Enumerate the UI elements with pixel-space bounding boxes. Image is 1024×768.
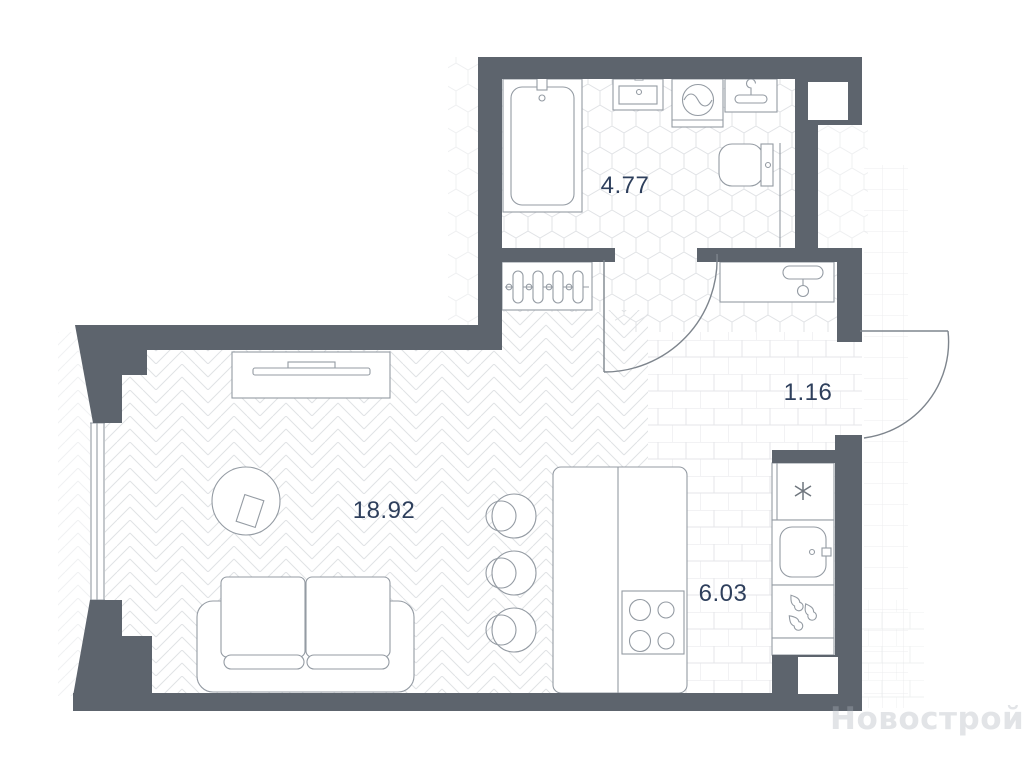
wall-bath-right (795, 125, 818, 260)
living-room-area-label: 18.92 (353, 497, 416, 524)
cooktop (622, 591, 684, 654)
kitchen-sink (772, 520, 834, 585)
hallway-area-label: 1.16 (784, 379, 833, 406)
tv-console (232, 352, 390, 398)
developer-watermark: Новострой-М (830, 701, 1024, 737)
wall-bath-bottom-right (697, 248, 862, 262)
fridge (772, 463, 834, 520)
shaft-opening-bottom (798, 657, 838, 694)
washing-machine (672, 79, 723, 127)
sofa (197, 577, 414, 692)
round-table (212, 467, 280, 535)
kitchen-island (553, 467, 687, 693)
shaft-opening-top (808, 82, 848, 120)
bathtub (503, 78, 582, 212)
wardrobe-hanger (720, 262, 834, 302)
bar-stools (486, 494, 536, 652)
wall-bath-bottom-left (502, 248, 615, 262)
floor-plan-canvas: 4.77 1.16 18.92 6.03 Новострой-М (0, 0, 1024, 768)
bathroom-area-label: 4.77 (601, 172, 650, 199)
wall-top (478, 57, 862, 79)
wall-bath-left (478, 79, 502, 330)
kitchen-area-label: 6.03 (699, 580, 748, 607)
dishwasher (772, 585, 834, 638)
radiator (502, 262, 592, 310)
wall-counter-stub (772, 450, 835, 463)
outside-hex-right (818, 118, 868, 248)
outside-hex-left (448, 57, 478, 330)
wall-hall-right-upper (837, 262, 862, 342)
window (90, 423, 105, 600)
wall-bottom (73, 693, 862, 711)
outside-tiles-bottom-right (862, 600, 924, 708)
towel-hanger-icon (725, 79, 777, 112)
counter-end (772, 638, 834, 655)
wall-living-top (93, 325, 502, 350)
living-room-floor-strip (502, 310, 648, 350)
floor-plan-drawing: 4.77 1.16 18.92 6.03 (0, 0, 1024, 768)
